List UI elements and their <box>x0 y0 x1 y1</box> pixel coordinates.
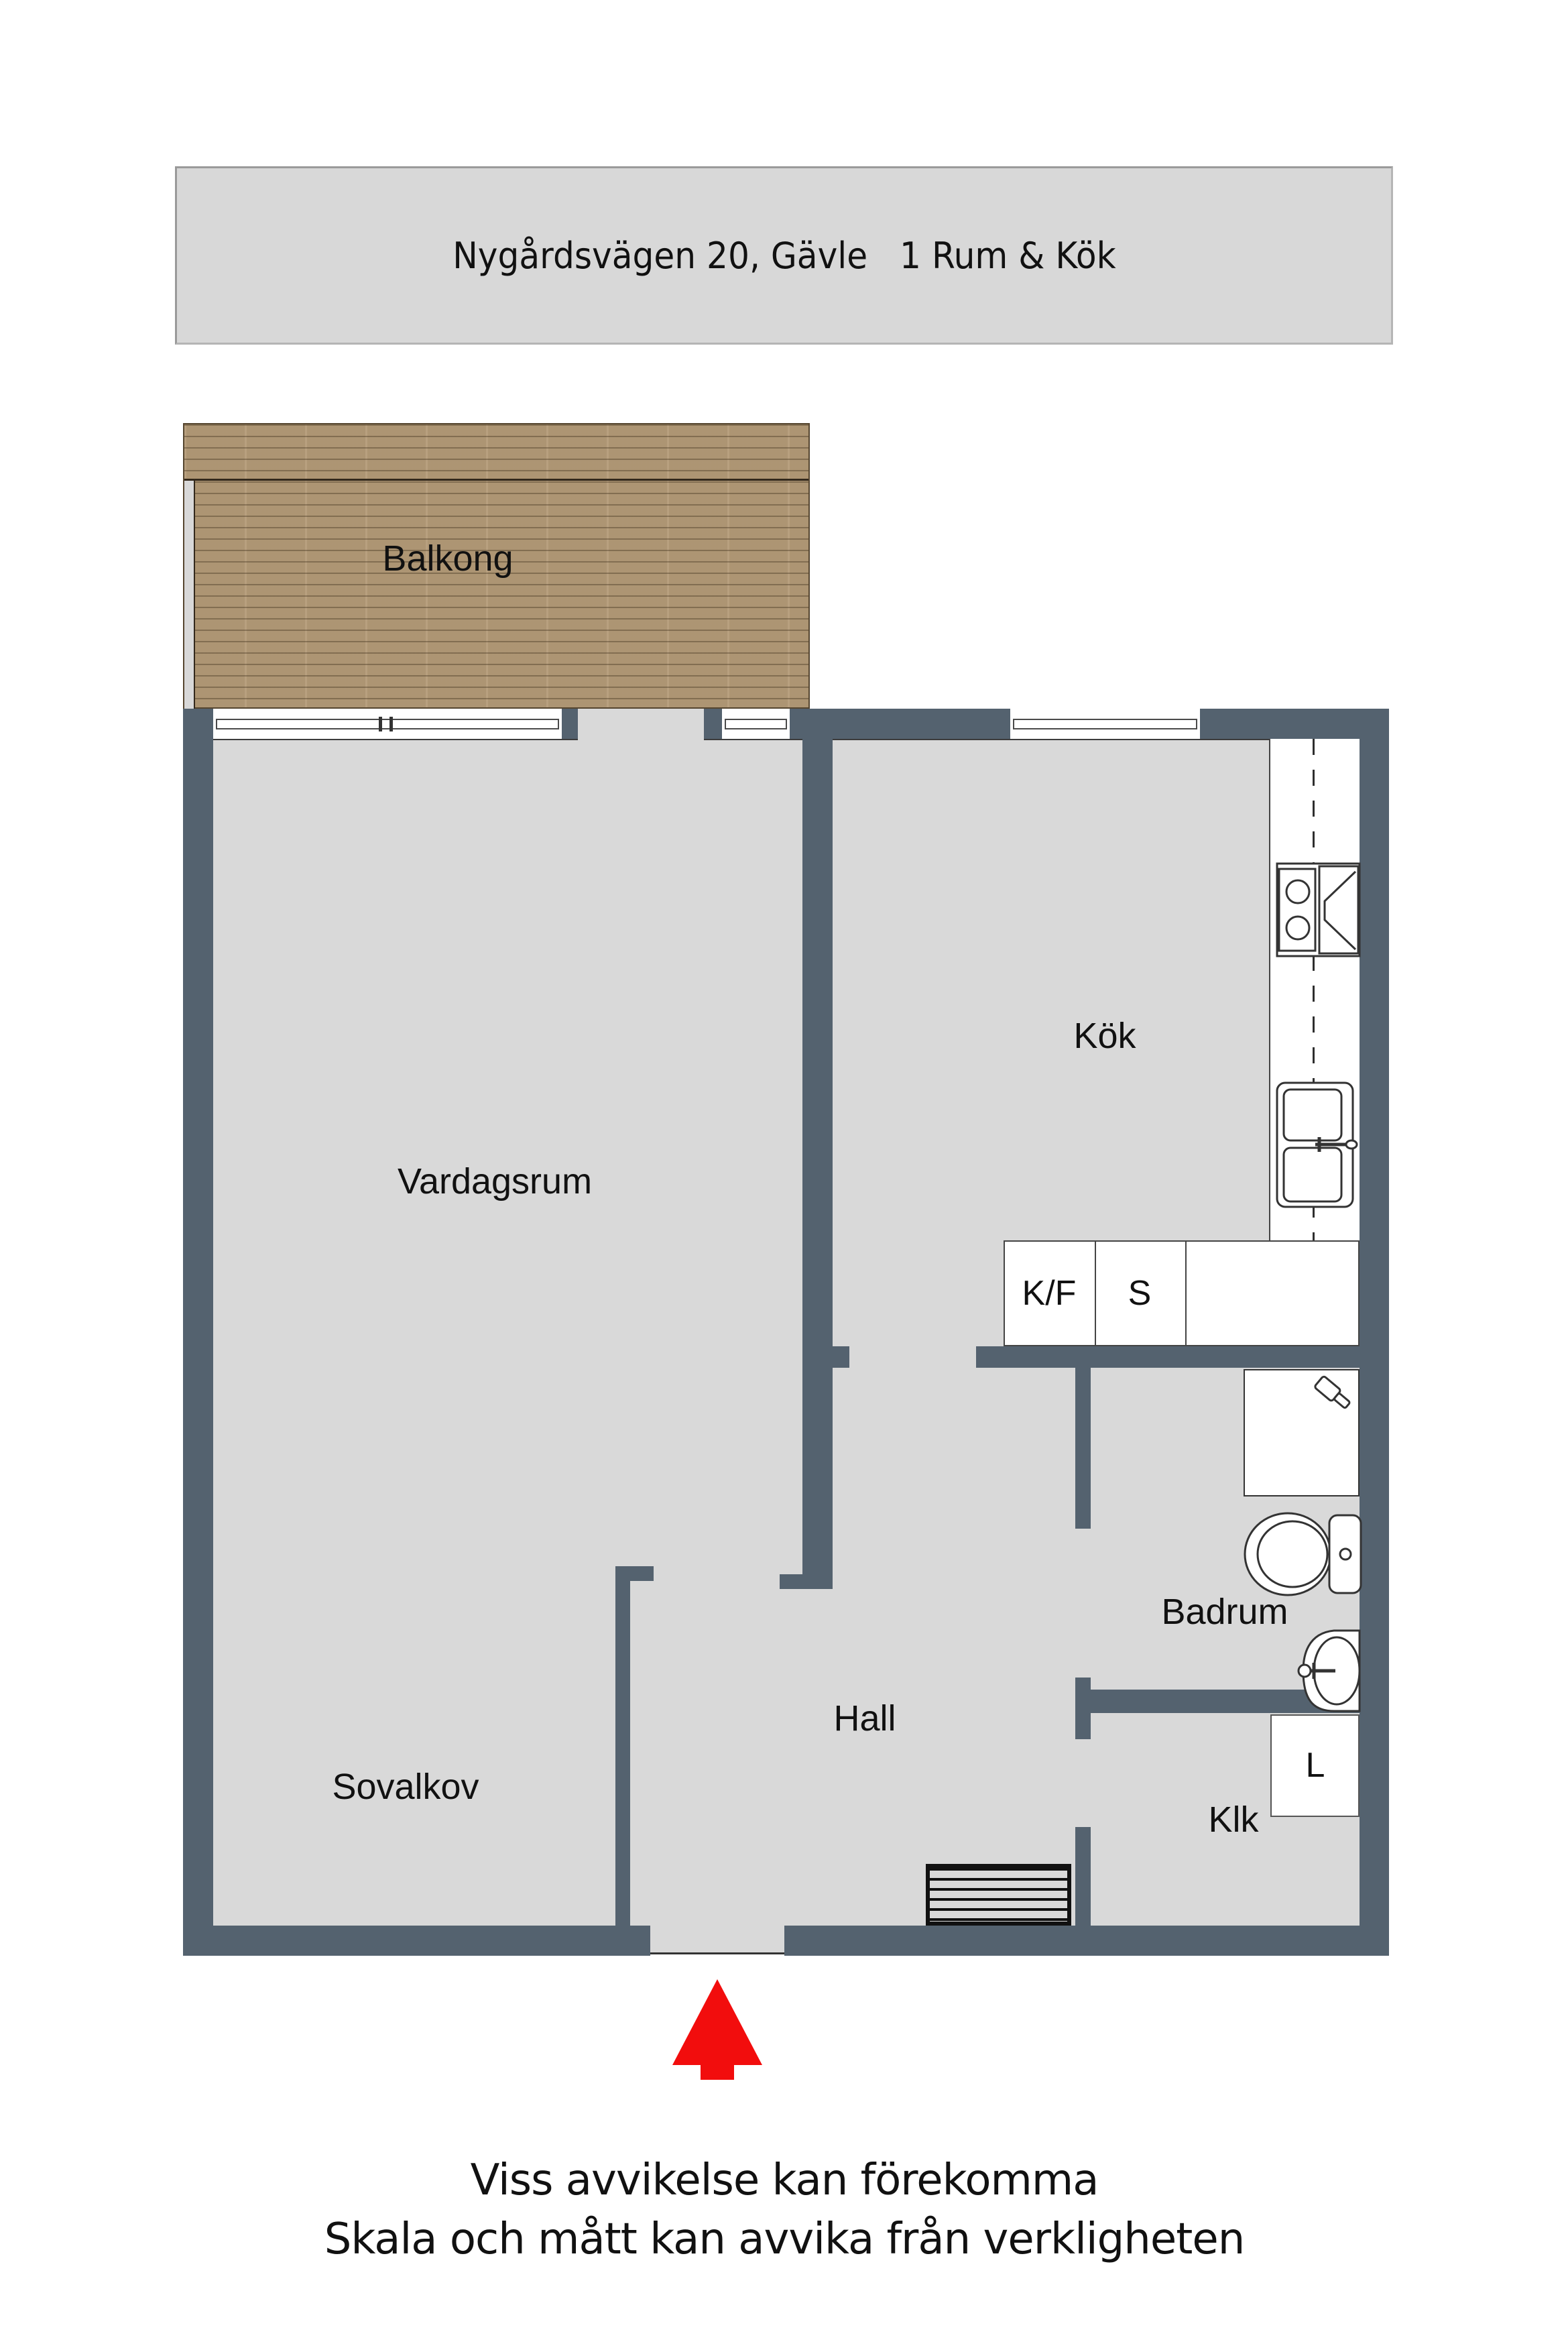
wall-bathroom-left-upper <box>1075 1368 1091 1529</box>
window-living-room <box>213 709 562 739</box>
balcony-rail <box>184 481 195 710</box>
wall-closet-left <box>1075 1827 1091 1926</box>
window-living-room-small <box>722 709 790 739</box>
wall-living-kitchen-foot <box>780 1574 802 1589</box>
room-label-bathroom: Badrum <box>1161 1591 1288 1633</box>
room-label-closet: Klk <box>1208 1799 1258 1840</box>
shower-base <box>1244 1369 1360 1496</box>
wall-kitchen-hall <box>976 1346 1360 1368</box>
window-mullion <box>389 717 393 731</box>
window-mullion <box>379 717 382 731</box>
wall-top-middle <box>790 709 1010 739</box>
cabinet-divider <box>1095 1242 1096 1345</box>
wall-top-right <box>1200 709 1360 739</box>
wall-outer-bottom-left <box>183 1926 650 1956</box>
window-kitchen <box>1010 709 1200 739</box>
wall-top-pier-1 <box>562 709 578 739</box>
entrance-opening <box>650 1926 784 1954</box>
disclaimer-line-2: Skala och mått kan avvika från verklighe… <box>324 2215 1245 2264</box>
appliance-label-fridge-freezer: K/F <box>1022 1273 1077 1313</box>
wall-sleeping-divider <box>615 1581 630 1926</box>
wall-outer-bottom-right <box>784 1926 1389 1956</box>
wall-living-kitchen <box>802 739 833 1589</box>
room-label-sleeping: Sovalkov <box>332 1766 479 1808</box>
appliance-label-stove-cabinet: S <box>1128 1273 1152 1313</box>
title-bar: Nygårdsvägen 20, Gävle 1 Rum & Kök <box>175 166 1393 345</box>
balcony-door-opening <box>578 709 704 741</box>
window-frame <box>725 719 787 729</box>
appliance-label-linen-closet: L <box>1306 1745 1325 1785</box>
wall-sleeping-foot <box>603 1926 650 1956</box>
wall-outer-left <box>183 709 213 1956</box>
wall-sleeping-cap <box>615 1566 654 1581</box>
window-frame <box>216 719 559 729</box>
room-label-balcony: Balkong <box>382 538 513 579</box>
wall-bathroom-bottom <box>1075 1690 1360 1713</box>
window-frame <box>1013 719 1197 729</box>
wall-top-pier-2 <box>704 709 722 739</box>
disclaimer-line-1: Viss avvikelse kan förekomma <box>471 2156 1099 2205</box>
room-label-kitchen: Kök <box>1073 1015 1136 1057</box>
room-label-hall: Hall <box>833 1698 896 1739</box>
wall-outer-right <box>1360 709 1389 1956</box>
cabinet-divider <box>1185 1242 1187 1345</box>
balcony-edge-band <box>184 424 808 481</box>
page-title: Nygårdsvägen 20, Gävle 1 Rum & Kök <box>453 235 1115 277</box>
room-label-living: Vardagsrum <box>398 1161 592 1202</box>
wall-kitchen-door-stub <box>833 1346 849 1368</box>
doormat-icon <box>926 1864 1071 1926</box>
entrance-arrow-icon <box>672 1979 762 2080</box>
floor-plan-page: Nygårdsvägen 20, Gävle 1 Rum & Kök Balko… <box>0 0 1568 2352</box>
